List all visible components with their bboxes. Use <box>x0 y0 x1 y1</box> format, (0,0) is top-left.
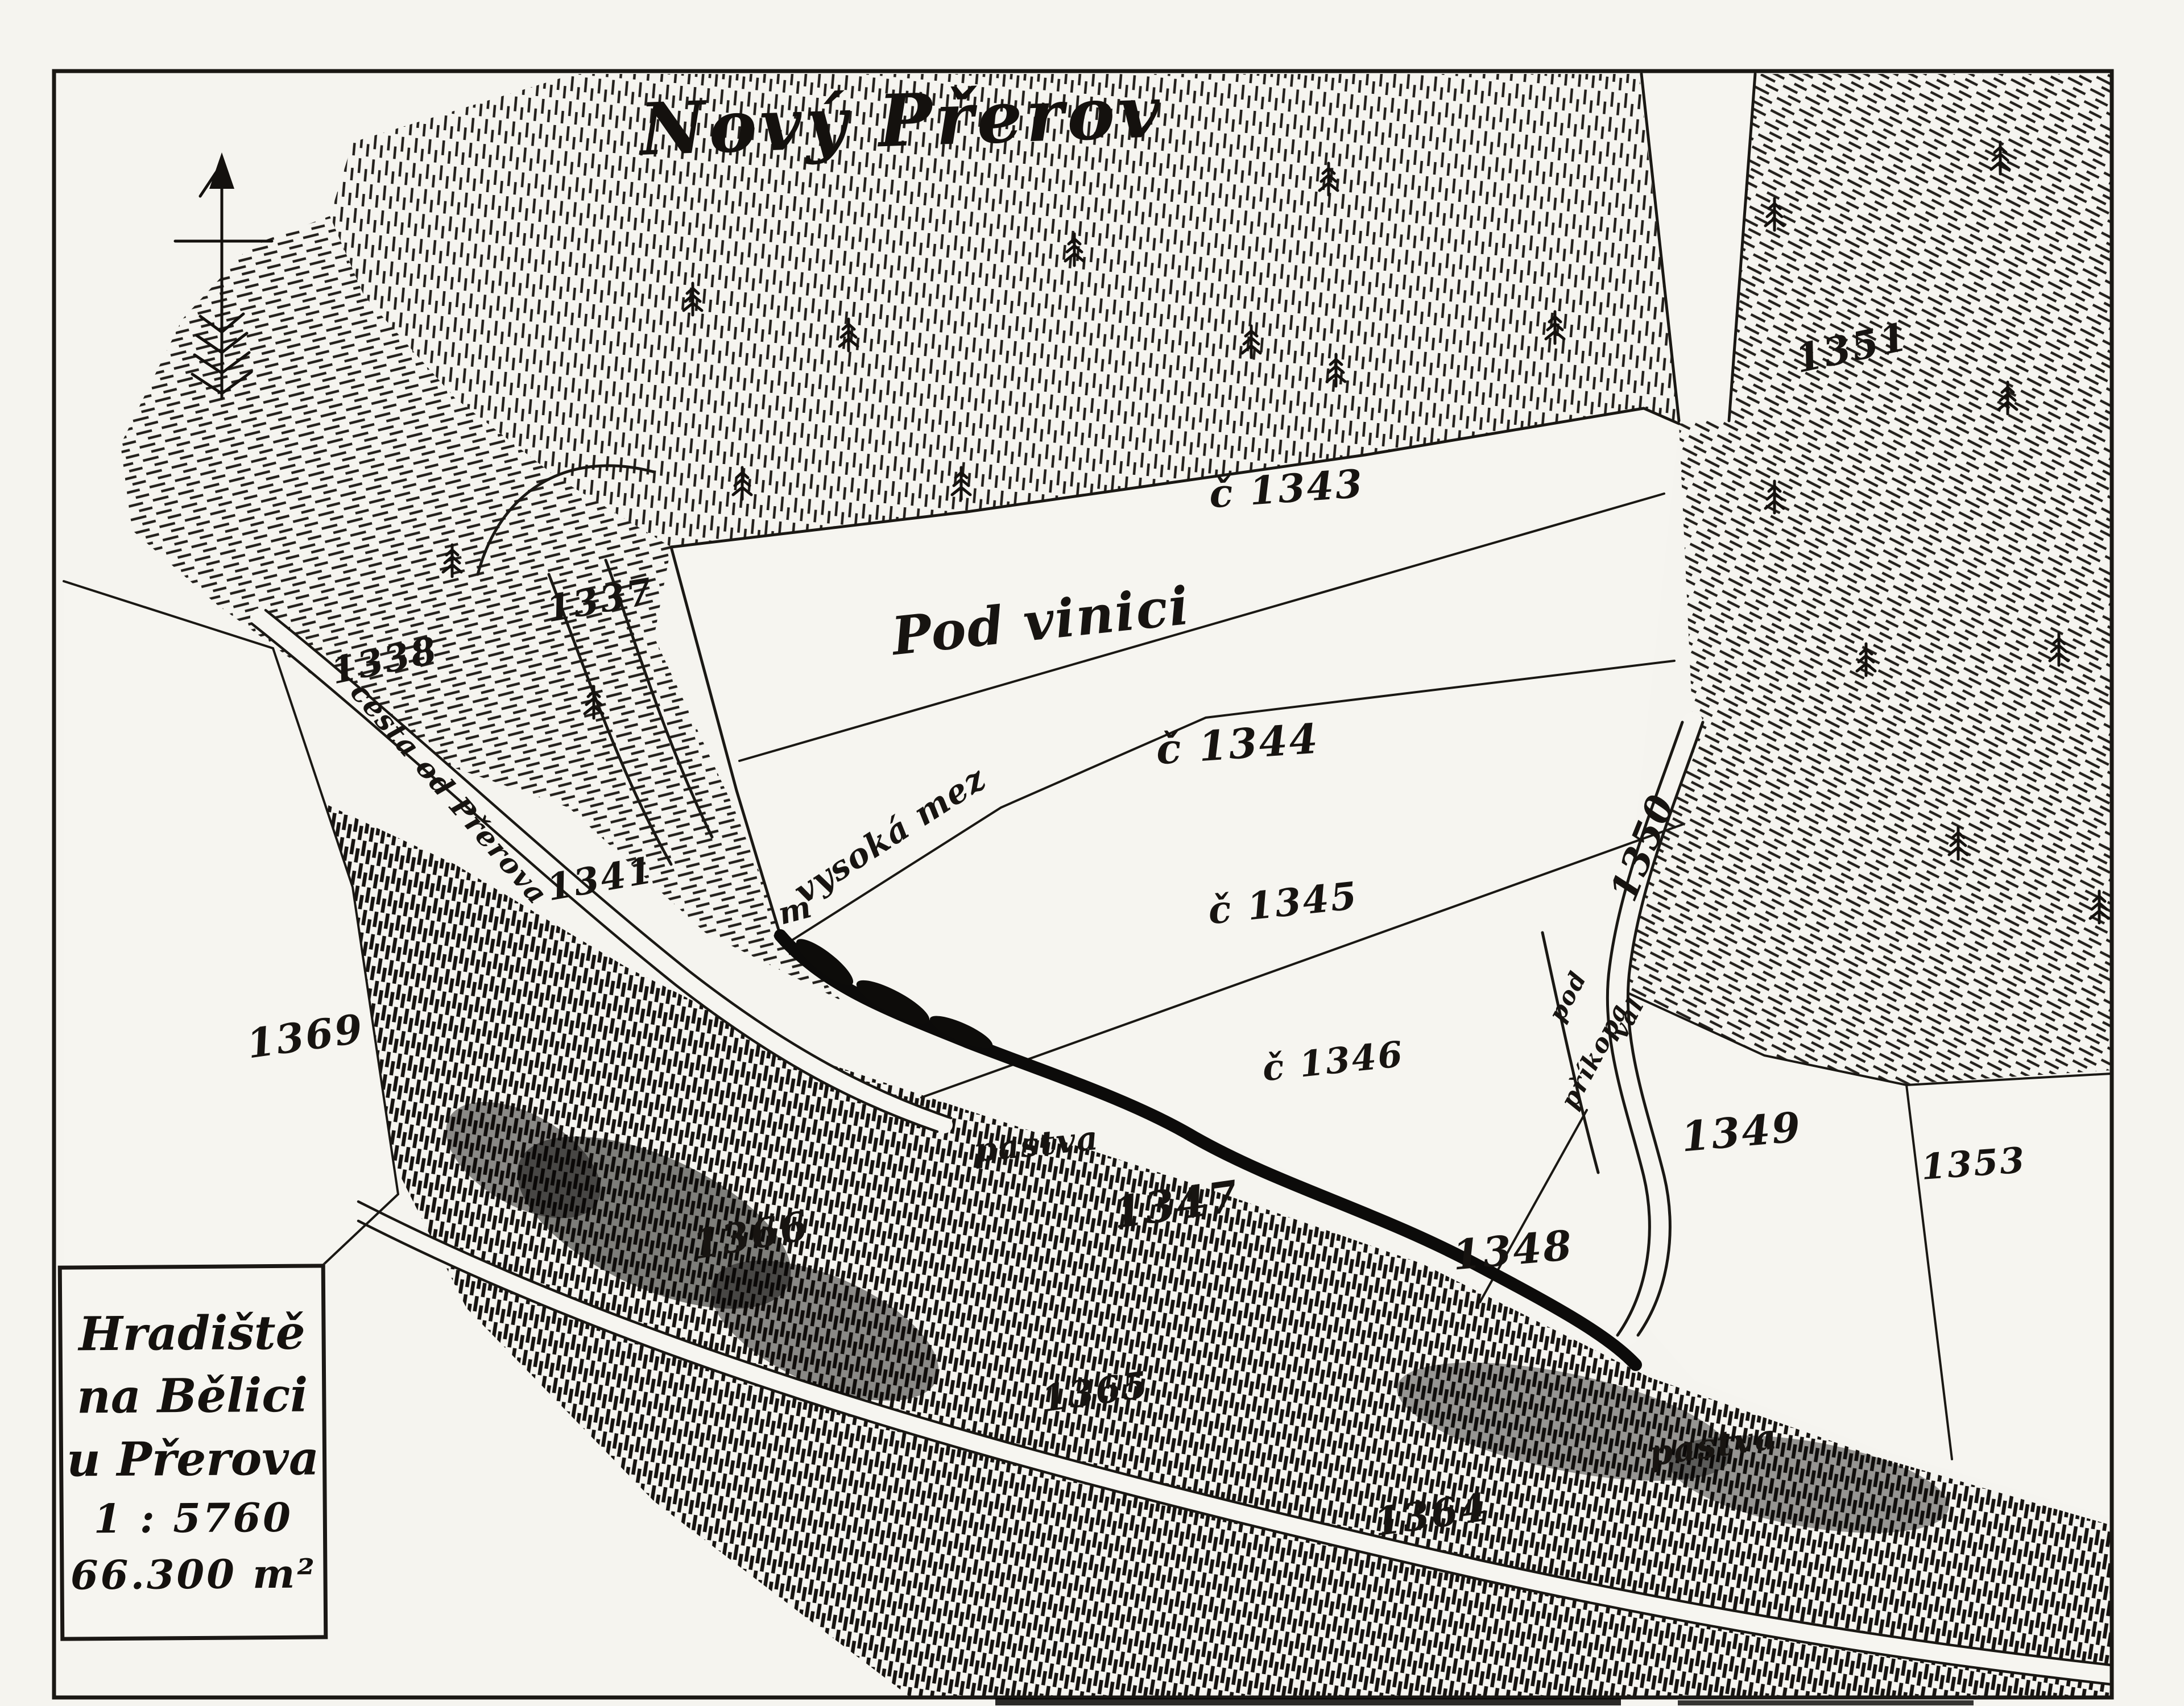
legend-area: 66.300 m² <box>71 1547 317 1603</box>
legend-scale: 1 : 5760 <box>93 1491 293 1546</box>
map-drawing <box>0 0 2184 1706</box>
legend-title-line: na Bělici <box>77 1365 308 1427</box>
map: Nový Přerov 133713381341č 1343č 1344č 13… <box>0 0 2184 1706</box>
legend-title-line: u Přerova <box>67 1428 320 1490</box>
legend-box: Hradiště na Bělici u Přerova 1 : 5760 66… <box>58 1264 328 1641</box>
label-parcel-1353: 1353 <box>1920 1139 2027 1188</box>
legend-title-line: Hradiště <box>78 1302 305 1364</box>
